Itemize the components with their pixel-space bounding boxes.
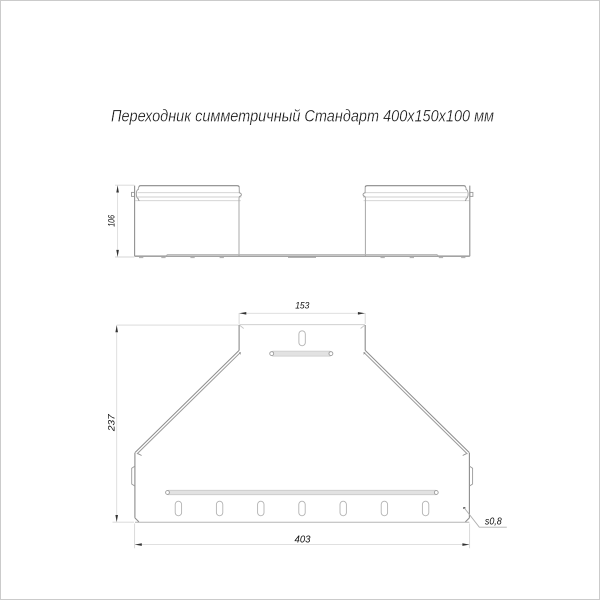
svg-text:153: 153	[295, 300, 310, 310]
svg-text:106: 106	[106, 215, 117, 227]
svg-text:403: 403	[295, 534, 311, 545]
svg-text:Переходник симметричный Станда: Переходник симметричный Стандарт 400х150…	[111, 106, 494, 125]
svg-text:s0,8: s0,8	[485, 517, 502, 528]
svg-text:237: 237	[106, 414, 117, 433]
